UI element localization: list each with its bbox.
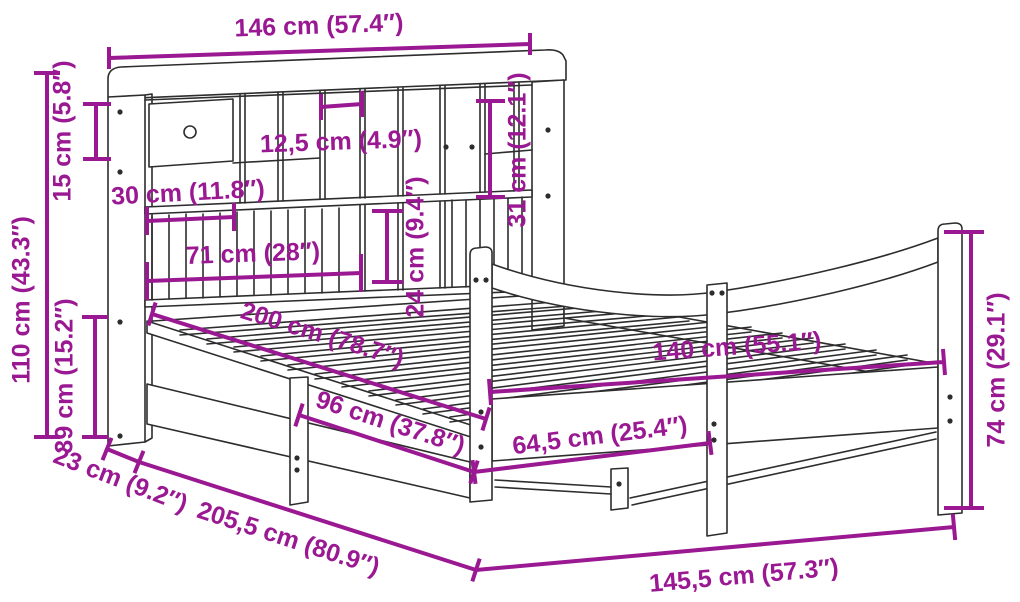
dim-label: 110 cm (43.3″) — [8, 216, 36, 384]
headboard-left-stile — [108, 95, 145, 446]
dim-line — [321, 91, 362, 120]
dim-line — [82, 317, 108, 437]
dim-top-shelf-height: 15 cm (5.8″) — [49, 60, 111, 201]
footboard-right-post — [938, 223, 962, 515]
dim-line — [83, 104, 111, 159]
dim-label: 145,5 cm (57.3″) — [648, 553, 840, 597]
dim-base-height: 39 cm (15.2″) — [51, 298, 108, 453]
dim-label: 24 cm (9.4″) — [402, 176, 430, 317]
side-leg — [290, 377, 308, 505]
dim-label: 71 cm (28″) — [185, 237, 320, 270]
dim-label: 74 cm (29.1″) — [983, 292, 1011, 447]
dimension-diagram-page: 146 cm (57.4″) 15 cm (5.8″) 110 cm (43.3… — [0, 0, 1020, 602]
dim-label: 39 cm (15.2″) — [51, 298, 79, 453]
bed-dimension-diagram: 146 cm (57.4″) 15 cm (5.8″) 110 cm (43.3… — [0, 0, 1020, 602]
drawer-knob — [184, 126, 196, 138]
footboard-center-post — [707, 283, 727, 536]
center-leg — [611, 468, 628, 510]
drawer-shelf-line — [233, 158, 320, 163]
dim-label: 15 cm (5.8″) — [49, 60, 77, 201]
dim-label: 31 cm (12.1″) — [504, 72, 532, 227]
dim-headboard-depth: 23 cm (9.2″) — [50, 438, 192, 518]
dim-label: 12,5 cm (4.9″) — [259, 125, 422, 159]
dim-label: 146 cm (57.4″) — [234, 9, 404, 43]
